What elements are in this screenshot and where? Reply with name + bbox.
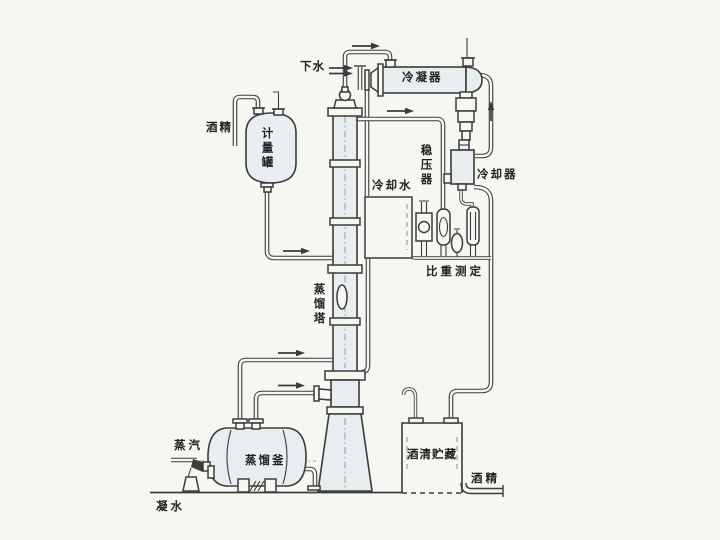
label-distillation-column: 蒸馏塔 <box>312 283 324 327</box>
label-pressure-stabilizer: 稳压器 <box>419 144 431 188</box>
label-drain-water: 下水 <box>300 62 325 74</box>
cooler <box>444 150 474 190</box>
label-measuring-tank: 计量罐 <box>260 127 272 171</box>
process-flow-diagram: 下水 冷凝器 酒精 计量罐 稳压器 冷却水 冷却器 比重测定 蒸馏塔 蒸汽 蒸馏… <box>0 0 720 540</box>
steam-inlet <box>183 459 214 491</box>
cooling-water-tank <box>365 197 412 258</box>
column-sight-glass <box>337 285 347 309</box>
label-cooler: 冷却器 <box>477 170 518 182</box>
label-condenser: 冷凝器 <box>402 73 443 85</box>
flow-arrow-kettle-line-2 <box>278 382 305 388</box>
label-distillation-kettle: 蒸馏釜 <box>245 456 286 468</box>
label-alcohol-in: 酒精 <box>206 123 233 135</box>
diagram-linework <box>0 0 720 540</box>
label-cooling-water: 冷却水 <box>372 181 413 193</box>
column-base <box>314 380 372 491</box>
gravity-measurement-station <box>365 197 479 258</box>
flow-arrow-feed-line <box>283 248 310 254</box>
label-alcohol-out: 酒精 <box>471 474 500 486</box>
label-alcohol-storage: 酒清贮藏 <box>407 450 457 462</box>
flow-arrow-drain-water-2 <box>329 70 353 76</box>
flow-arrow-kettle-line-1 <box>278 350 305 356</box>
flow-arrow-top <box>352 43 380 50</box>
flow-arrow-vapor-line <box>387 108 414 114</box>
drip-funnel <box>183 477 199 491</box>
condenser <box>365 38 482 96</box>
flow-arrow-drain-water-1 <box>329 65 353 71</box>
label-steam: 蒸汽 <box>174 441 203 453</box>
label-gravity-measurement: 比重测定 <box>426 267 484 279</box>
pressure-stabilizer-bellows <box>456 92 476 150</box>
label-condensate-water: 凝水 <box>156 502 185 514</box>
column-top-fitting <box>334 87 356 108</box>
